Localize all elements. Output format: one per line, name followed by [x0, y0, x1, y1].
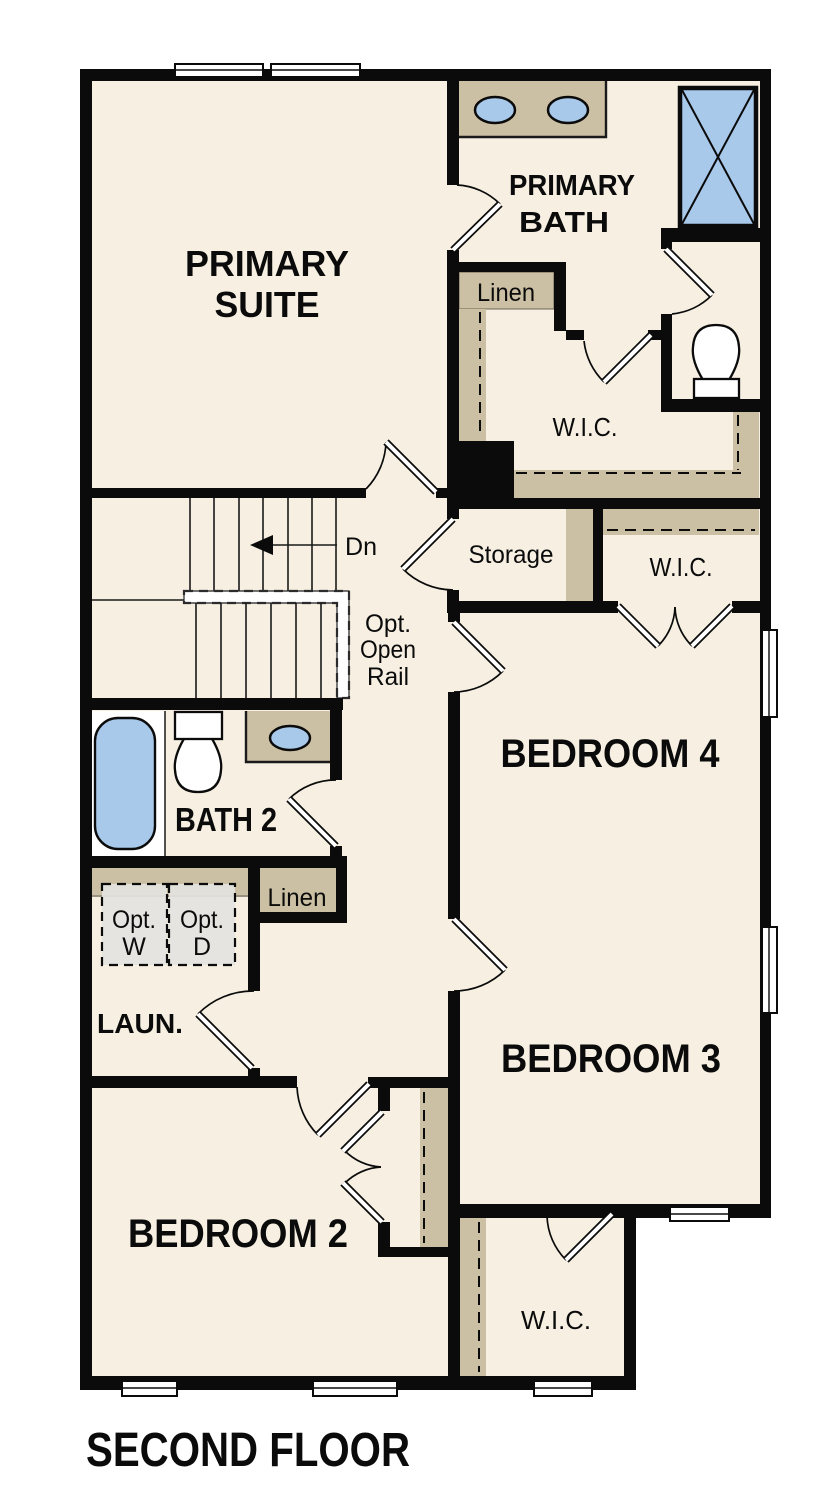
svg-text:W.I.C.: W.I.C. [650, 552, 713, 582]
svg-text:BEDROOM 3: BEDROOM 3 [501, 1037, 721, 1081]
svg-text:Open: Open [360, 636, 416, 664]
svg-text:D: D [193, 933, 211, 961]
svg-text:BEDROOM 4: BEDROOM 4 [501, 732, 721, 776]
svg-text:LAUN.: LAUN. [97, 1008, 183, 1039]
svg-text:BEDROOM 2: BEDROOM 2 [128, 1212, 348, 1256]
svg-text:W.I.C.: W.I.C. [553, 412, 618, 442]
svg-text:BATH 2: BATH 2 [175, 801, 277, 838]
svg-text:Opt.: Opt. [180, 906, 224, 934]
svg-text:Linen: Linen [477, 279, 535, 307]
svg-text:Opt.: Opt. [112, 906, 156, 934]
svg-text:Linen: Linen [268, 884, 327, 912]
svg-text:SECOND FLOOR: SECOND FLOOR [86, 1424, 410, 1477]
svg-text:W: W [122, 933, 146, 961]
svg-text:PRIMARY: PRIMARY [509, 170, 635, 202]
svg-text:W.I.C.: W.I.C. [521, 1305, 591, 1335]
svg-text:PRIMARY: PRIMARY [185, 243, 349, 284]
svg-text:Storage: Storage [469, 541, 554, 569]
svg-text:Rail: Rail [367, 663, 409, 691]
svg-text:SUITE: SUITE [215, 284, 320, 325]
svg-text:Opt.: Opt. [365, 610, 411, 638]
svg-text:Dn: Dn [345, 533, 377, 561]
svg-text:BATH: BATH [519, 207, 609, 239]
